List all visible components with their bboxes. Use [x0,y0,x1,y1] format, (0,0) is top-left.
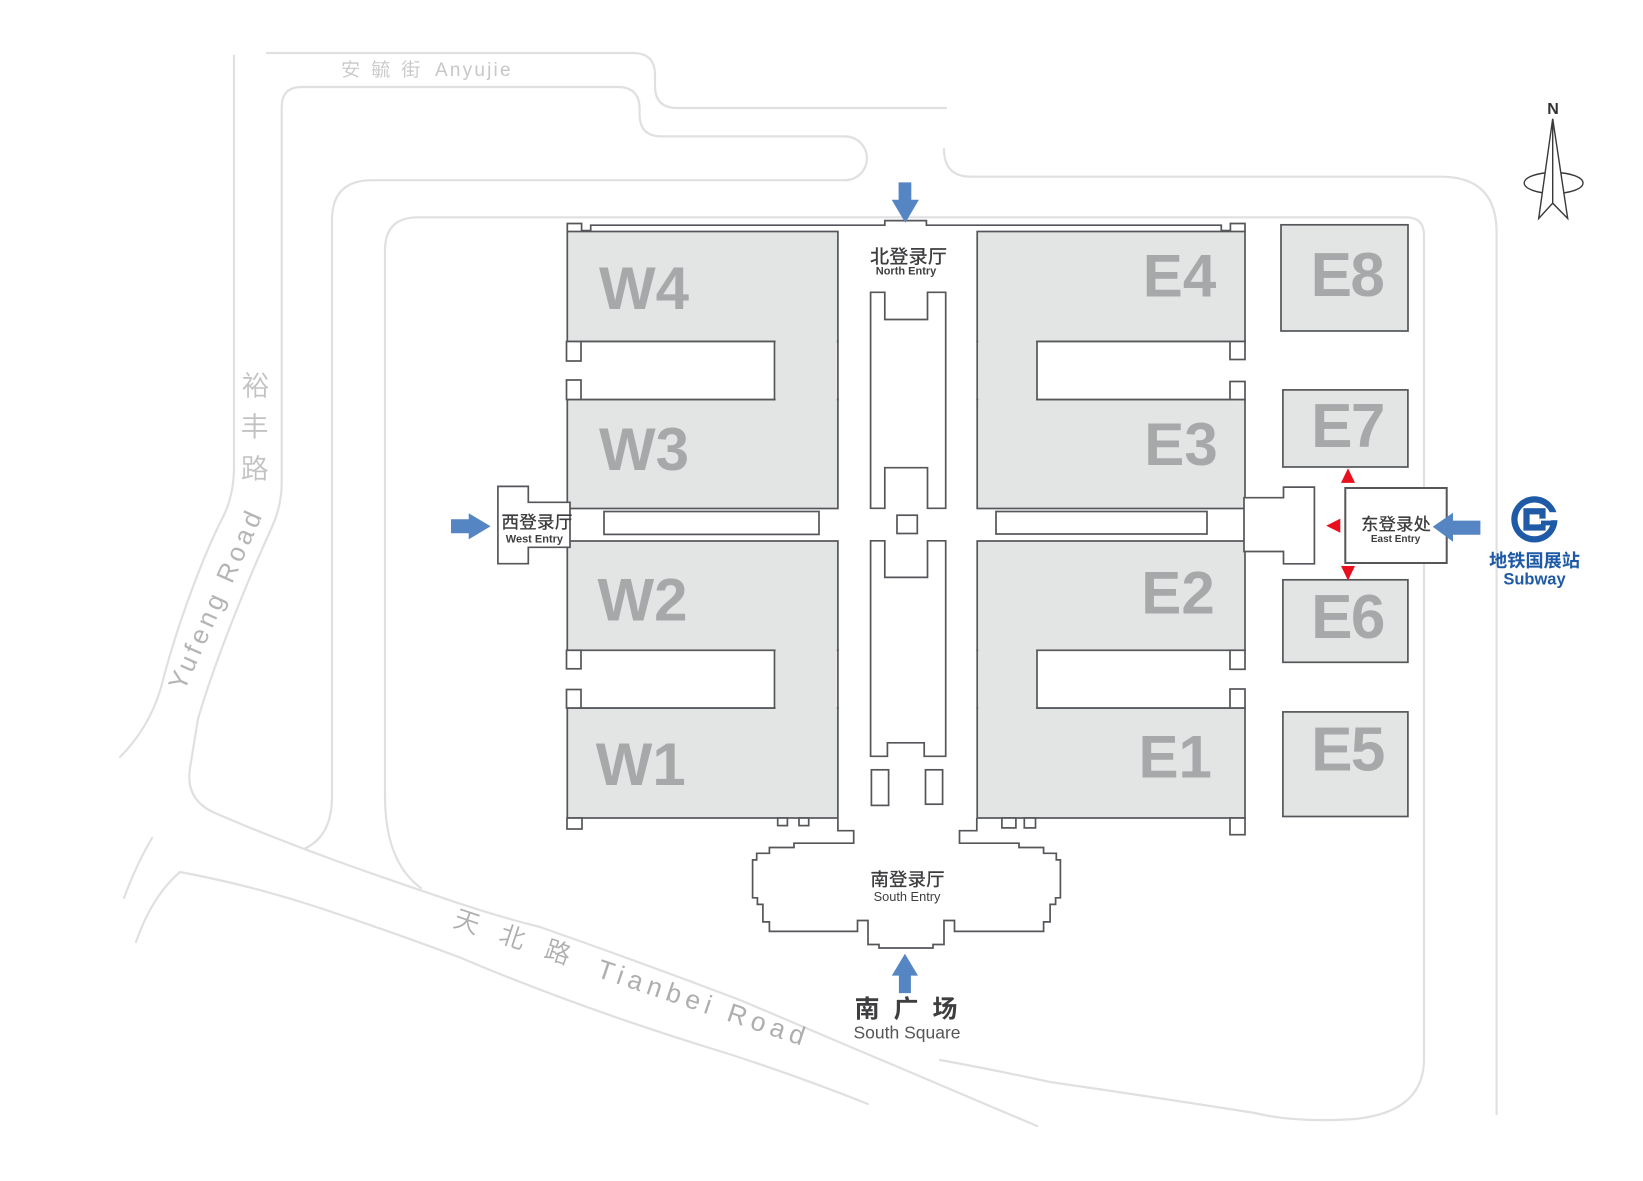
svg-text:W1: W1 [596,731,686,798]
svg-text:South Entry: South Entry [874,889,941,904]
svg-text:W4: W4 [599,255,690,322]
svg-text:E1: E1 [1139,724,1212,791]
svg-text:W2: W2 [598,567,688,634]
svg-text:Subway: Subway [1503,571,1566,589]
svg-text:E4: E4 [1143,242,1217,309]
svg-text:E3: E3 [1144,411,1217,478]
svg-text:Anyujie: Anyujie [435,60,513,81]
svg-text:N: N [1547,101,1559,118]
svg-text:East Entry: East Entry [1371,534,1421,545]
svg-text:E2: E2 [1141,559,1214,626]
svg-text:West Entry: West Entry [506,534,564,546]
svg-text:E8: E8 [1311,241,1384,310]
svg-text:North Entry: North Entry [876,265,937,277]
svg-text:South Square: South Square [853,1023,960,1043]
svg-text:E6: E6 [1311,583,1384,652]
svg-text:W3: W3 [599,416,689,483]
svg-text:E7: E7 [1311,392,1384,461]
svg-text:E5: E5 [1311,715,1384,784]
